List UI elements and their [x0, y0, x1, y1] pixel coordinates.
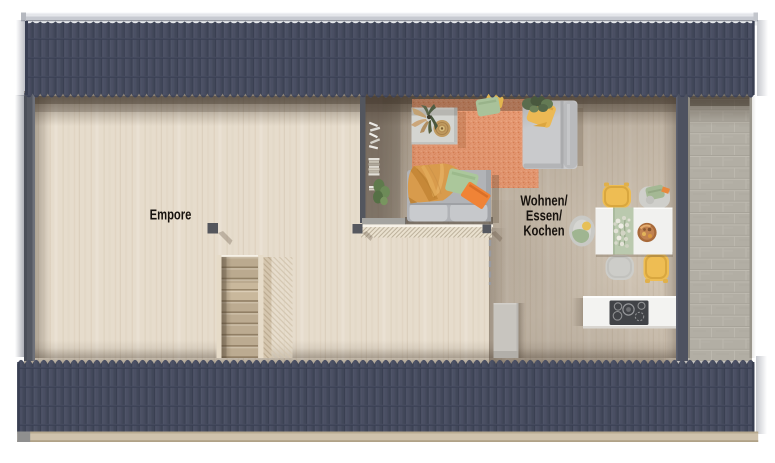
svg-text:Empore: Empore: [150, 206, 192, 223]
svg-text:Kochen: Kochen: [523, 222, 564, 239]
